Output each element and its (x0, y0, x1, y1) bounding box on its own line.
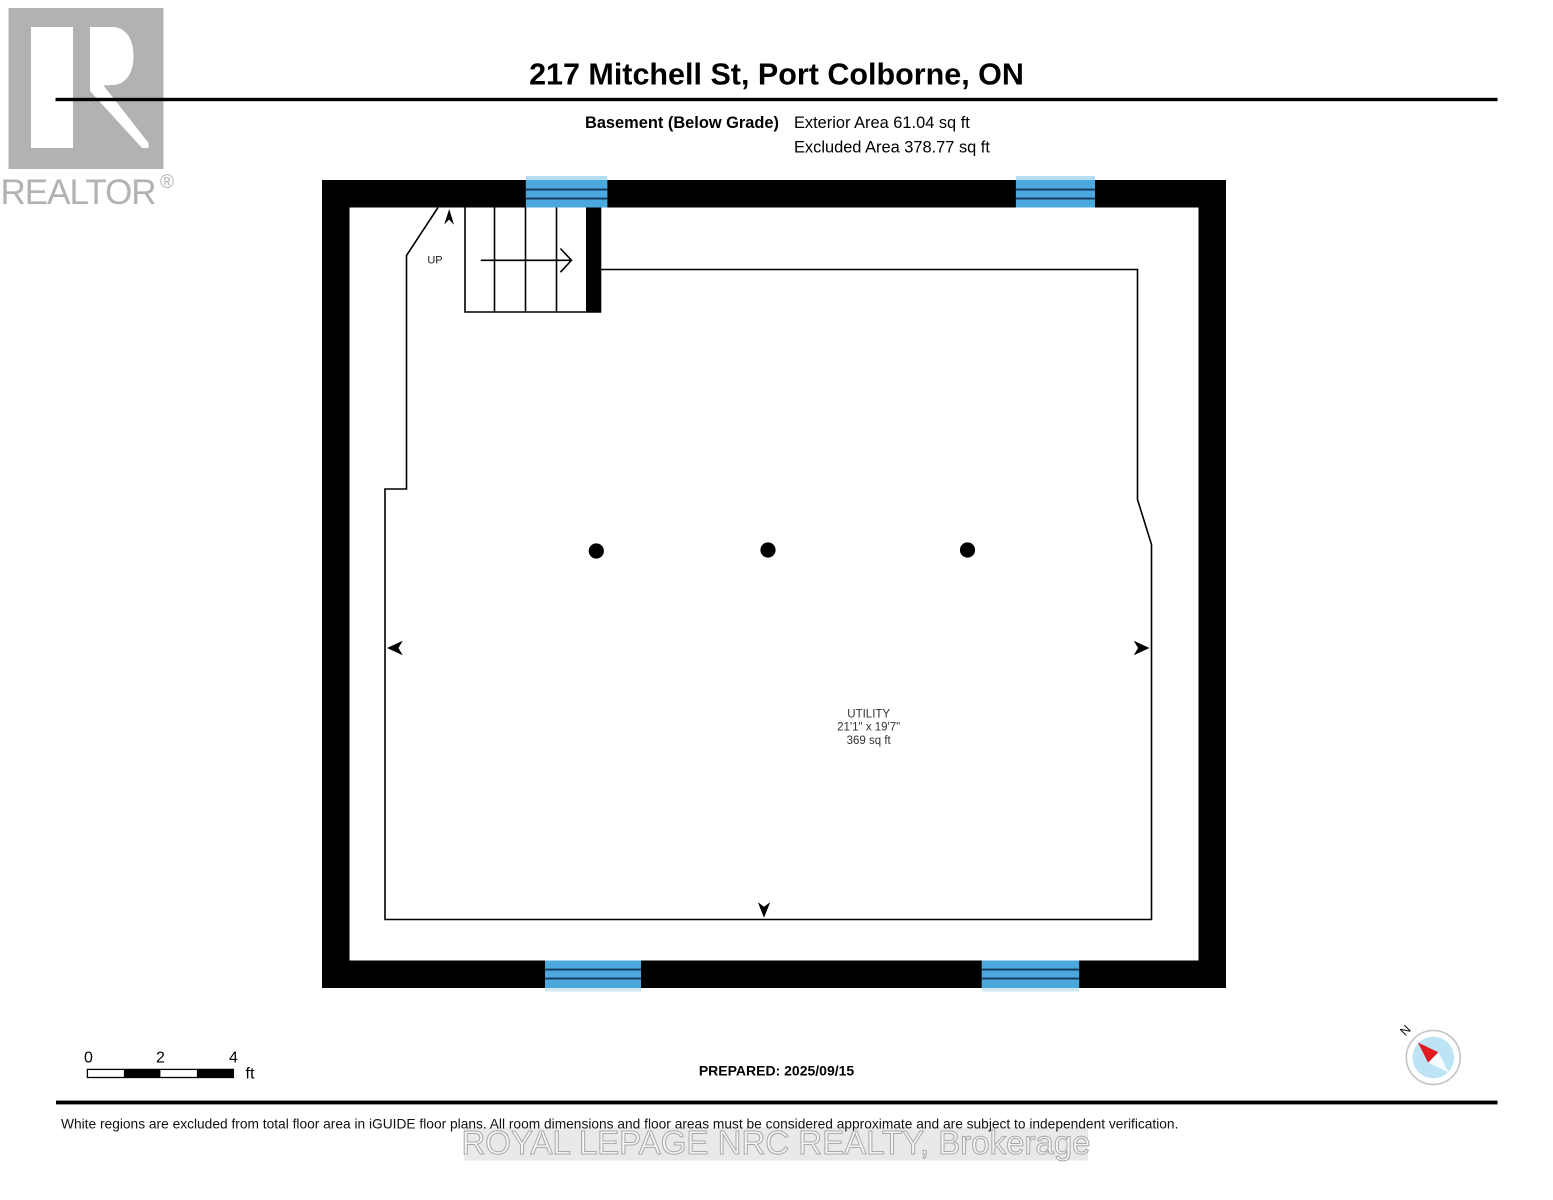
svg-text:UTILITY: UTILITY (847, 709, 890, 721)
svg-text:217 Mitchell St, Port Colborne: 217 Mitchell St, Port Colborne, ON (529, 58, 1024, 92)
svg-text:369 sq ft: 369 sq ft (847, 735, 892, 747)
svg-text:®: ® (160, 172, 174, 193)
svg-text:ft: ft (246, 1066, 255, 1083)
svg-text:2: 2 (156, 1050, 165, 1067)
svg-text:Basement (Below Grade): Basement (Below Grade) (585, 114, 779, 132)
svg-text:Excluded Area 378.77 sq ft: Excluded Area 378.77 sq ft (794, 139, 990, 157)
svg-text:0: 0 (84, 1050, 93, 1067)
svg-text:N: N (1397, 1022, 1413, 1038)
svg-text:Exterior Area 61.04 sq ft: Exterior Area 61.04 sq ft (794, 114, 970, 132)
svg-text:REALTOR: REALTOR (1, 173, 156, 212)
svg-text:4: 4 (229, 1050, 238, 1067)
svg-text:ROYAL LEPAGE NRC REALTY, Broke: ROYAL LEPAGE NRC REALTY, Brokerage (461, 1124, 1090, 1161)
svg-text:21'1" x 19'7": 21'1" x 19'7" (837, 722, 900, 734)
svg-text:PREPARED: 2025/09/15: PREPARED: 2025/09/15 (699, 1063, 855, 1079)
svg-text:UP: UP (427, 255, 442, 267)
